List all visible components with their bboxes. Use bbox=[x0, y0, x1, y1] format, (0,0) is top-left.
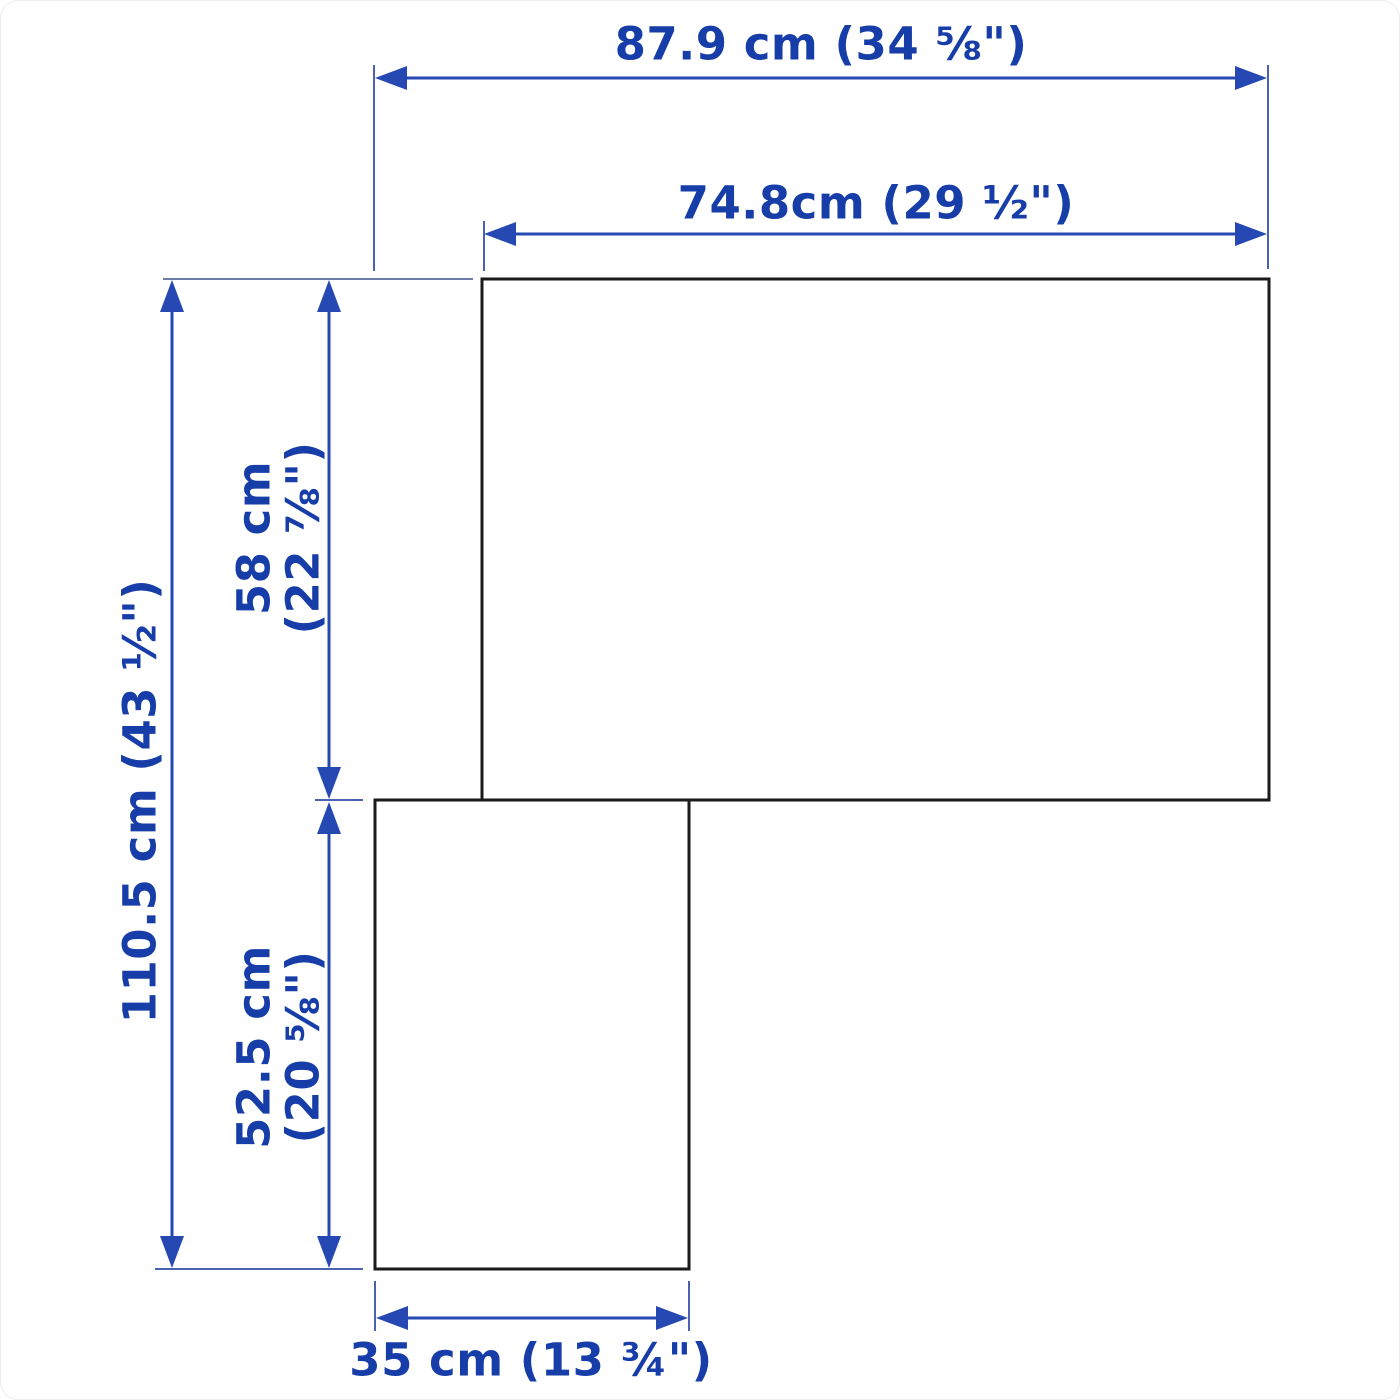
label-lower-height-cm: 52.5 cm bbox=[230, 945, 279, 1149]
label-upper-height-cm: 58 cm bbox=[230, 442, 279, 635]
dimension-diagram: 87.9 cm (34 ⅝") 74.8cm (29 ½") 110.5 cm … bbox=[0, 0, 1400, 1400]
label-upper-width: 74.8cm (29 ½") bbox=[678, 180, 1075, 229]
label-total-height: 110.5 cm (43 ½") bbox=[117, 579, 166, 1024]
label-upper-height: 58 cm (22 ⅞") bbox=[230, 442, 327, 635]
label-lower-height-in: (20 ⅝") bbox=[279, 945, 328, 1149]
label-total-width: 87.9 cm (34 ⅝") bbox=[615, 21, 1028, 70]
label-lower-height: 52.5 cm (20 ⅝") bbox=[230, 945, 327, 1149]
upper-unit-outline bbox=[482, 279, 1269, 800]
label-upper-height-in: (22 ⅞") bbox=[279, 442, 328, 635]
lower-unit-outline bbox=[375, 800, 689, 1269]
dim-arrow-lower-width bbox=[376, 1306, 688, 1330]
label-lower-width: 35 cm (13 ¾") bbox=[349, 1337, 712, 1386]
